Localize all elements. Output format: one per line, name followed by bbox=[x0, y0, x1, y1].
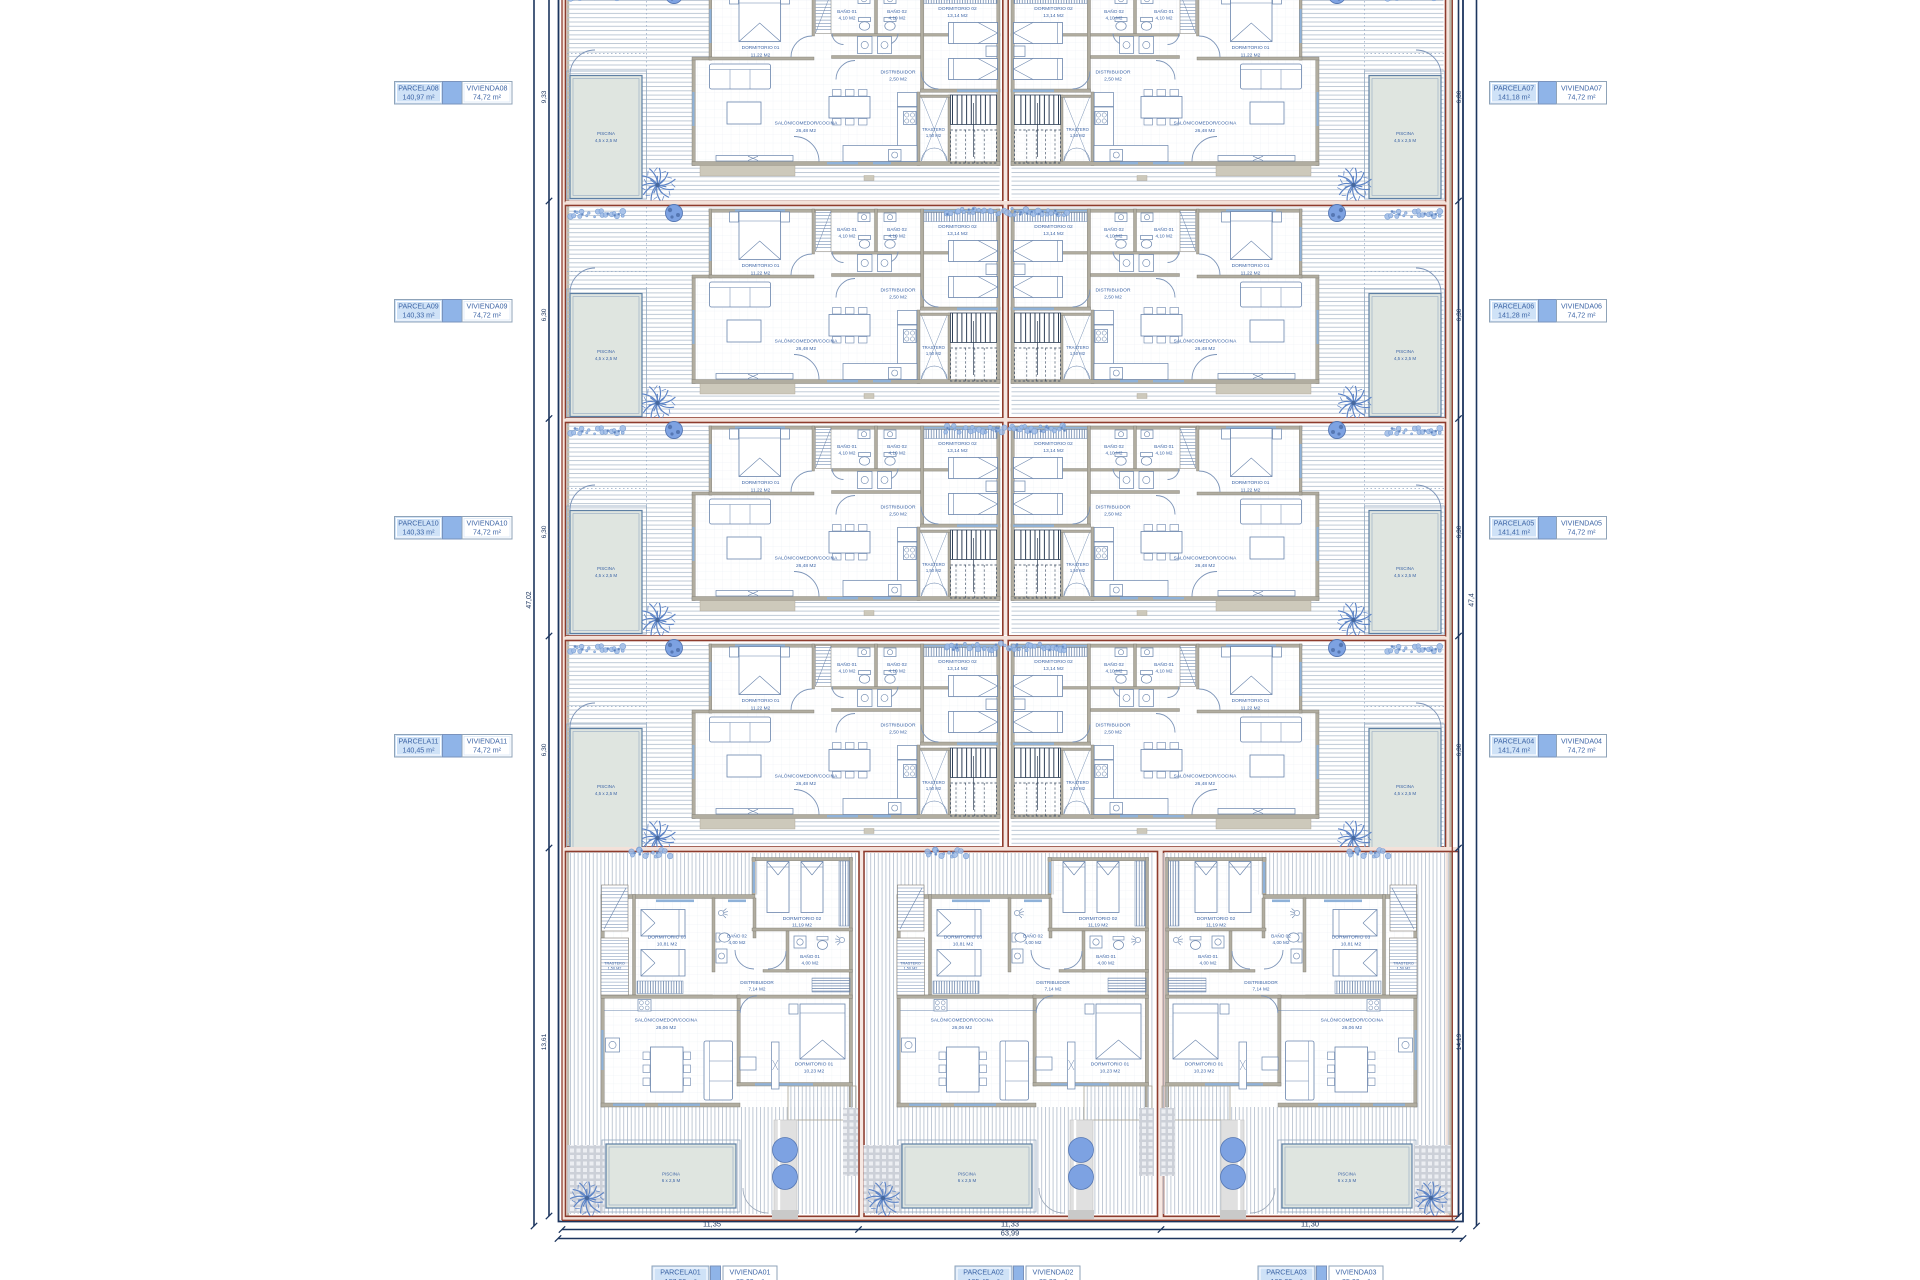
svg-text:4,00 M2: 4,00 M2 bbox=[729, 940, 746, 945]
svg-text:SALÓN/COMEDOR/COCINA: SALÓN/COMEDOR/COCINA bbox=[775, 555, 838, 562]
svg-text:140,33 m²: 140,33 m² bbox=[403, 312, 436, 320]
svg-text:26,48 M2: 26,48 M2 bbox=[796, 563, 816, 569]
svg-text:DORMITORIO 01: DORMITORIO 01 bbox=[1232, 698, 1270, 704]
svg-text:4,10 M2: 4,10 M2 bbox=[1156, 669, 1173, 674]
svg-text:140,97 m²: 140,97 m² bbox=[403, 94, 436, 102]
svg-text:74,72 m²: 74,72 m² bbox=[1568, 747, 1597, 755]
svg-text:74,72 m²: 74,72 m² bbox=[1568, 529, 1597, 537]
svg-text:26,48 M2: 26,48 M2 bbox=[1195, 128, 1215, 134]
svg-text:11,22 M2: 11,22 M2 bbox=[751, 53, 771, 59]
svg-text:BAÑO 02: BAÑO 02 bbox=[1104, 8, 1124, 14]
svg-text:BAÑO 01: BAÑO 01 bbox=[1154, 443, 1174, 449]
svg-text:BAÑO 01: BAÑO 01 bbox=[837, 443, 857, 449]
svg-text:DORMITORIO 01: DORMITORIO 01 bbox=[795, 1062, 834, 1068]
svg-text:PARCELA04: PARCELA04 bbox=[1494, 738, 1535, 746]
svg-text:11,22 M2: 11,22 M2 bbox=[1241, 53, 1261, 59]
svg-text:PARCELA06: PARCELA06 bbox=[1494, 303, 1535, 311]
svg-text:4,10 M2: 4,10 M2 bbox=[1106, 234, 1123, 239]
svg-text:1,50 M2: 1,50 M2 bbox=[904, 967, 918, 971]
svg-text:4,5 x 2,5 M: 4,5 x 2,5 M bbox=[1394, 138, 1417, 143]
svg-text:11,19 M2: 11,19 M2 bbox=[792, 923, 812, 929]
svg-text:10,23 M2: 10,23 M2 bbox=[1100, 1069, 1121, 1075]
svg-text:47,4: 47,4 bbox=[1469, 593, 1476, 607]
svg-text:PISCINA: PISCINA bbox=[958, 1172, 976, 1177]
svg-text:VIVIENDA11: VIVIENDA11 bbox=[467, 738, 508, 746]
svg-text:TRASTERO: TRASTERO bbox=[1393, 962, 1414, 966]
svg-text:PISCINA: PISCINA bbox=[597, 349, 615, 354]
svg-text:PARCELA08: PARCELA08 bbox=[398, 85, 439, 93]
svg-text:4,10 M2: 4,10 M2 bbox=[1106, 669, 1123, 674]
svg-text:26,06 M2: 26,06 M2 bbox=[952, 1025, 972, 1031]
svg-text:26,48 M2: 26,48 M2 bbox=[796, 346, 816, 352]
svg-text:BAÑO 02: BAÑO 02 bbox=[1023, 933, 1043, 939]
svg-text:BAÑO 02: BAÑO 02 bbox=[1271, 933, 1291, 939]
svg-text:1,50 M2: 1,50 M2 bbox=[1070, 133, 1086, 138]
svg-text:BAÑO 01: BAÑO 01 bbox=[837, 8, 857, 14]
svg-text:7,14 M2: 7,14 M2 bbox=[1253, 987, 1270, 992]
svg-text:1,50 M2: 1,50 M2 bbox=[1070, 568, 1086, 573]
svg-text:11,19 M2: 11,19 M2 bbox=[1088, 923, 1108, 929]
svg-text:DISTRIBUIDOR: DISTRIBUIDOR bbox=[1095, 70, 1131, 76]
svg-text:6,30: 6,30 bbox=[541, 308, 548, 321]
svg-text:BAÑO 01: BAÑO 01 bbox=[1154, 226, 1174, 232]
svg-text:13,14 M2: 13,14 M2 bbox=[947, 231, 968, 237]
svg-text:74,72 m²: 74,72 m² bbox=[473, 312, 502, 320]
svg-text:1,50 M2: 1,50 M2 bbox=[1070, 351, 1086, 356]
svg-text:DORMITORIO 02: DORMITORIO 02 bbox=[1034, 441, 1073, 447]
svg-text:4,5 x 2,5 M: 4,5 x 2,5 M bbox=[595, 573, 618, 578]
svg-text:DORMITORIO 02: DORMITORIO 02 bbox=[783, 916, 822, 922]
svg-text:PISCINA: PISCINA bbox=[597, 784, 615, 789]
svg-text:13,61: 13,61 bbox=[541, 1033, 548, 1050]
svg-text:2,50 M2: 2,50 M2 bbox=[1104, 730, 1122, 736]
svg-text:PARCELA05: PARCELA05 bbox=[1494, 520, 1535, 528]
svg-text:4,10 M2: 4,10 M2 bbox=[1156, 451, 1173, 456]
svg-text:VIVIENDA07: VIVIENDA07 bbox=[1561, 85, 1602, 93]
svg-text:VIVIENDA04: VIVIENDA04 bbox=[1561, 738, 1602, 746]
svg-text:141,41 m²: 141,41 m² bbox=[1498, 529, 1531, 537]
svg-text:BAÑO 01: BAÑO 01 bbox=[1154, 661, 1174, 667]
svg-text:4,10 M2: 4,10 M2 bbox=[839, 16, 856, 21]
svg-text:BAÑO 02: BAÑO 02 bbox=[727, 933, 747, 939]
svg-text:PISCINA: PISCINA bbox=[1396, 566, 1414, 571]
svg-text:6 x 2,5 M: 6 x 2,5 M bbox=[662, 1178, 681, 1183]
svg-text:VIVIENDA05: VIVIENDA05 bbox=[1561, 520, 1602, 528]
svg-text:4,00 M2: 4,00 M2 bbox=[1025, 940, 1042, 945]
svg-text:DORMITORIO 02: DORMITORIO 02 bbox=[938, 6, 977, 12]
svg-text:DORMITORIO 01: DORMITORIO 01 bbox=[1091, 1062, 1130, 1068]
svg-text:TRASTERO: TRASTERO bbox=[922, 562, 946, 567]
svg-text:PISCINA: PISCINA bbox=[1396, 784, 1414, 789]
svg-text:4,5 x 2,5 M: 4,5 x 2,5 M bbox=[595, 791, 618, 796]
svg-text:DORMITORIO 03: DORMITORIO 03 bbox=[944, 935, 983, 941]
svg-text:PISCINA: PISCINA bbox=[1396, 349, 1414, 354]
svg-text:DORMITORIO 02: DORMITORIO 02 bbox=[1034, 659, 1073, 665]
svg-text:PISCINA: PISCINA bbox=[597, 566, 615, 571]
svg-text:4,10 M2: 4,10 M2 bbox=[889, 234, 906, 239]
svg-text:141,18 m²: 141,18 m² bbox=[1498, 94, 1531, 102]
svg-text:26,48 M2: 26,48 M2 bbox=[1195, 781, 1215, 787]
svg-text:4,5 x 2,5 M: 4,5 x 2,5 M bbox=[595, 138, 618, 143]
svg-text:6,30: 6,30 bbox=[1456, 743, 1463, 756]
svg-text:47,02: 47,02 bbox=[526, 591, 533, 608]
svg-text:4,00 M2: 4,00 M2 bbox=[1273, 940, 1290, 945]
svg-text:2,50 M2: 2,50 M2 bbox=[889, 512, 907, 518]
svg-text:DISTRIBUIDOR: DISTRIBUIDOR bbox=[880, 505, 916, 511]
svg-text:2,50 M2: 2,50 M2 bbox=[889, 77, 907, 83]
svg-text:DISTRIBUIDOR: DISTRIBUIDOR bbox=[740, 980, 774, 985]
svg-text:6,30: 6,30 bbox=[541, 743, 548, 756]
svg-text:13,14 M2: 13,14 M2 bbox=[1043, 231, 1064, 237]
svg-text:11,22 M2: 11,22 M2 bbox=[1241, 706, 1261, 712]
svg-text:TRASTERO: TRASTERO bbox=[1066, 562, 1090, 567]
svg-text:PARCELA01: PARCELA01 bbox=[660, 1269, 701, 1277]
svg-text:1,50 M2: 1,50 M2 bbox=[926, 133, 942, 138]
svg-text:2,50 M2: 2,50 M2 bbox=[1104, 77, 1122, 83]
svg-text:4,00 M2: 4,00 M2 bbox=[1200, 961, 1217, 966]
svg-text:1,50 M2: 1,50 M2 bbox=[608, 967, 622, 971]
svg-text:PISCINA: PISCINA bbox=[1396, 131, 1414, 136]
svg-text:1,50 M2: 1,50 M2 bbox=[1070, 786, 1086, 791]
svg-text:SALÓN/COMEDOR/COCINA: SALÓN/COMEDOR/COCINA bbox=[1174, 120, 1237, 127]
svg-text:TRASTERO: TRASTERO bbox=[922, 127, 946, 132]
svg-text:VIVIENDA02: VIVIENDA02 bbox=[1032, 1269, 1073, 1277]
svg-text:BAÑO 02: BAÑO 02 bbox=[1104, 226, 1124, 232]
svg-text:2,50 M2: 2,50 M2 bbox=[1104, 295, 1122, 301]
svg-text:BAÑO 02: BAÑO 02 bbox=[887, 661, 907, 667]
svg-text:26,48 M2: 26,48 M2 bbox=[1195, 346, 1215, 352]
svg-text:9,33: 9,33 bbox=[541, 90, 548, 103]
svg-text:11,22 M2: 11,22 M2 bbox=[1241, 271, 1261, 277]
svg-text:11,35: 11,35 bbox=[703, 1220, 721, 1229]
svg-text:10,23 M2: 10,23 M2 bbox=[1194, 1069, 1215, 1075]
svg-text:PARCELA03: PARCELA03 bbox=[1266, 1269, 1307, 1277]
svg-text:BAÑO 02: BAÑO 02 bbox=[887, 443, 907, 449]
svg-text:DORMITORIO 01: DORMITORIO 01 bbox=[1232, 263, 1270, 269]
svg-text:74,72 m²: 74,72 m² bbox=[1568, 312, 1597, 320]
svg-text:BAÑO 01: BAÑO 01 bbox=[1096, 953, 1116, 959]
svg-text:VIVIENDA08: VIVIENDA08 bbox=[466, 85, 507, 93]
svg-text:DORMITORIO 02: DORMITORIO 02 bbox=[1034, 6, 1073, 12]
svg-text:4,5 x 2,5 M: 4,5 x 2,5 M bbox=[1394, 573, 1417, 578]
svg-text:74,72 m²: 74,72 m² bbox=[473, 94, 502, 102]
svg-text:DISTRIBUIDOR: DISTRIBUIDOR bbox=[1244, 980, 1278, 985]
svg-text:141,74 m²: 141,74 m² bbox=[1498, 747, 1531, 755]
svg-text:DORMITORIO 01: DORMITORIO 01 bbox=[742, 698, 780, 704]
svg-text:SALÓN/COMEDOR/COCINA: SALÓN/COMEDOR/COCINA bbox=[931, 1017, 994, 1024]
svg-text:14,19: 14,19 bbox=[1456, 1033, 1463, 1050]
svg-text:6 x 2,5 M: 6 x 2,5 M bbox=[958, 1178, 977, 1183]
svg-text:26,48 M2: 26,48 M2 bbox=[1195, 563, 1215, 569]
svg-text:VIVIENDA09: VIVIENDA09 bbox=[466, 303, 507, 311]
svg-text:13,14 M2: 13,14 M2 bbox=[1043, 666, 1064, 672]
svg-text:SALÓN/COMEDOR/COCINA: SALÓN/COMEDOR/COCINA bbox=[1321, 1017, 1384, 1024]
svg-text:4,10 M2: 4,10 M2 bbox=[839, 234, 856, 239]
svg-text:4,10 M2: 4,10 M2 bbox=[1106, 451, 1123, 456]
svg-text:4,00 M2: 4,00 M2 bbox=[1098, 961, 1115, 966]
svg-text:6,30: 6,30 bbox=[1456, 525, 1463, 538]
svg-text:DORMITORIO 01: DORMITORIO 01 bbox=[742, 45, 780, 51]
svg-text:TRASTERO: TRASTERO bbox=[1066, 345, 1090, 350]
svg-text:BAÑO 02: BAÑO 02 bbox=[1104, 661, 1124, 667]
svg-text:13,14 M2: 13,14 M2 bbox=[1043, 13, 1064, 19]
svg-text:DORMITORIO 03: DORMITORIO 03 bbox=[1332, 935, 1371, 941]
svg-text:DORMITORIO 02: DORMITORIO 02 bbox=[1079, 916, 1118, 922]
svg-text:4,5 x 2,5 M: 4,5 x 2,5 M bbox=[1394, 791, 1417, 796]
svg-text:DORMITORIO 01: DORMITORIO 01 bbox=[1232, 480, 1270, 486]
svg-text:2,50 M2: 2,50 M2 bbox=[1104, 512, 1122, 518]
svg-text:26,48 M2: 26,48 M2 bbox=[796, 128, 816, 134]
svg-text:SALÓN/COMEDOR/COCINA: SALÓN/COMEDOR/COCINA bbox=[1174, 555, 1237, 562]
svg-text:BAÑO 01: BAÑO 01 bbox=[1154, 8, 1174, 14]
svg-text:TRASTERO: TRASTERO bbox=[922, 780, 946, 785]
svg-text:BAÑO 01: BAÑO 01 bbox=[837, 661, 857, 667]
svg-text:PISCINA: PISCINA bbox=[1338, 1172, 1356, 1177]
svg-text:DISTRIBUIDOR: DISTRIBUIDOR bbox=[1036, 980, 1070, 985]
svg-text:11,22 M2: 11,22 M2 bbox=[751, 488, 771, 494]
svg-text:4,10 M2: 4,10 M2 bbox=[889, 451, 906, 456]
svg-text:VIVIENDA01: VIVIENDA01 bbox=[729, 1269, 770, 1277]
svg-text:DISTRIBUIDOR: DISTRIBUIDOR bbox=[1095, 723, 1131, 729]
svg-text:6 x 2,5 M: 6 x 2,5 M bbox=[1338, 1178, 1357, 1183]
svg-text:DISTRIBUIDOR: DISTRIBUIDOR bbox=[880, 288, 916, 294]
svg-text:4,10 M2: 4,10 M2 bbox=[1156, 234, 1173, 239]
svg-text:4,5 x 2,5 M: 4,5 x 2,5 M bbox=[1394, 356, 1417, 361]
svg-text:DORMITORIO 02: DORMITORIO 02 bbox=[938, 224, 977, 230]
svg-text:63,99: 63,99 bbox=[1001, 1229, 1020, 1238]
svg-text:6,30: 6,30 bbox=[1456, 308, 1463, 321]
svg-text:DORMITORIO 01: DORMITORIO 01 bbox=[1232, 45, 1270, 51]
svg-text:74,72 m²: 74,72 m² bbox=[473, 747, 502, 755]
svg-text:11,22 M2: 11,22 M2 bbox=[1241, 488, 1261, 494]
svg-text:DORMITORIO 02: DORMITORIO 02 bbox=[1197, 916, 1236, 922]
svg-text:10,81 M2: 10,81 M2 bbox=[953, 942, 974, 948]
svg-text:13,14 M2: 13,14 M2 bbox=[947, 13, 968, 19]
svg-text:SALÓN/COMEDOR/COCINA: SALÓN/COMEDOR/COCINA bbox=[775, 338, 838, 345]
svg-text:4,10 M2: 4,10 M2 bbox=[839, 451, 856, 456]
svg-text:4,10 M2: 4,10 M2 bbox=[1156, 16, 1173, 21]
svg-text:PARCELA10: PARCELA10 bbox=[398, 520, 439, 528]
svg-text:7,14 M2: 7,14 M2 bbox=[749, 987, 766, 992]
svg-text:BAÑO 01: BAÑO 01 bbox=[800, 953, 820, 959]
svg-text:TRASTERO: TRASTERO bbox=[1066, 780, 1090, 785]
svg-text:BAÑO 01: BAÑO 01 bbox=[1198, 953, 1218, 959]
svg-text:1,50 M2: 1,50 M2 bbox=[1397, 967, 1411, 971]
svg-text:SALÓN/COMEDOR/COCINA: SALÓN/COMEDOR/COCINA bbox=[775, 120, 838, 127]
svg-text:TRASTERO: TRASTERO bbox=[604, 962, 625, 966]
svg-text:DORMITORIO 03: DORMITORIO 03 bbox=[648, 935, 687, 941]
svg-text:SALÓN/COMEDOR/COCINA: SALÓN/COMEDOR/COCINA bbox=[775, 773, 838, 780]
svg-text:6,80: 6,80 bbox=[1456, 90, 1463, 103]
svg-text:11,33: 11,33 bbox=[1001, 1220, 1019, 1229]
svg-text:74,72 m²: 74,72 m² bbox=[1568, 94, 1597, 102]
svg-text:PARCELA11: PARCELA11 bbox=[399, 738, 439, 746]
svg-text:11,19 M2: 11,19 M2 bbox=[1206, 923, 1226, 929]
svg-text:BAÑO 02: BAÑO 02 bbox=[887, 226, 907, 232]
svg-text:11,30: 11,30 bbox=[1301, 1220, 1319, 1229]
svg-text:DISTRIBUIDOR: DISTRIBUIDOR bbox=[880, 70, 916, 76]
svg-text:DORMITORIO 01: DORMITORIO 01 bbox=[1185, 1062, 1224, 1068]
svg-text:2,50 M2: 2,50 M2 bbox=[889, 295, 907, 301]
svg-text:4,10 M2: 4,10 M2 bbox=[889, 16, 906, 21]
svg-text:DORMITORIO 02: DORMITORIO 02 bbox=[938, 659, 977, 665]
svg-text:13,14 M2: 13,14 M2 bbox=[947, 448, 968, 454]
svg-text:10,23 M2: 10,23 M2 bbox=[804, 1069, 825, 1075]
svg-text:1,50 M2: 1,50 M2 bbox=[926, 351, 942, 356]
svg-text:26,06 M2: 26,06 M2 bbox=[1342, 1025, 1362, 1031]
svg-text:PARCELA09: PARCELA09 bbox=[398, 303, 439, 311]
svg-text:2,50 M2: 2,50 M2 bbox=[889, 730, 907, 736]
svg-text:BAÑO 02: BAÑO 02 bbox=[1104, 443, 1124, 449]
svg-text:PARCELA02: PARCELA02 bbox=[963, 1269, 1004, 1277]
svg-text:DORMITORIO 02: DORMITORIO 02 bbox=[938, 441, 977, 447]
svg-text:141,28 m²: 141,28 m² bbox=[1498, 312, 1531, 320]
svg-text:7,14 M2: 7,14 M2 bbox=[1045, 987, 1062, 992]
svg-text:VIVIENDA06: VIVIENDA06 bbox=[1561, 303, 1602, 311]
svg-text:10,81 M2: 10,81 M2 bbox=[657, 942, 678, 948]
svg-text:SALÓN/COMEDOR/COCINA: SALÓN/COMEDOR/COCINA bbox=[1174, 773, 1237, 780]
svg-text:13,14 M2: 13,14 M2 bbox=[947, 666, 968, 672]
svg-text:DORMITORIO 02: DORMITORIO 02 bbox=[1034, 224, 1073, 230]
svg-text:TRASTERO: TRASTERO bbox=[922, 345, 946, 350]
svg-text:26,06 M2: 26,06 M2 bbox=[656, 1025, 676, 1031]
svg-text:10,81 M2: 10,81 M2 bbox=[1341, 942, 1362, 948]
svg-text:13,14 M2: 13,14 M2 bbox=[1043, 448, 1064, 454]
svg-text:SALÓN/COMEDOR/COCINA: SALÓN/COMEDOR/COCINA bbox=[1174, 338, 1237, 345]
svg-text:140,45 m²: 140,45 m² bbox=[403, 747, 436, 755]
svg-text:11,22 M2: 11,22 M2 bbox=[751, 271, 771, 277]
svg-text:VIVIENDA10: VIVIENDA10 bbox=[466, 520, 507, 528]
svg-text:140,33 m²: 140,33 m² bbox=[403, 529, 436, 537]
svg-text:6,30: 6,30 bbox=[541, 525, 548, 538]
svg-text:1,50 M2: 1,50 M2 bbox=[926, 568, 942, 573]
svg-text:26,48 M2: 26,48 M2 bbox=[796, 781, 816, 787]
svg-text:VIVIENDA03: VIVIENDA03 bbox=[1335, 1269, 1376, 1277]
svg-text:BAÑO 02: BAÑO 02 bbox=[887, 8, 907, 14]
svg-text:TRASTERO: TRASTERO bbox=[900, 962, 921, 966]
svg-text:4,10 M2: 4,10 M2 bbox=[889, 669, 906, 674]
svg-text:BAÑO 01: BAÑO 01 bbox=[837, 226, 857, 232]
svg-text:1,50 M2: 1,50 M2 bbox=[926, 786, 942, 791]
svg-text:DORMITORIO 01: DORMITORIO 01 bbox=[742, 263, 780, 269]
svg-text:DISTRIBUIDOR: DISTRIBUIDOR bbox=[880, 723, 916, 729]
svg-text:4,00 M2: 4,00 M2 bbox=[802, 961, 819, 966]
svg-text:DISTRIBUIDOR: DISTRIBUIDOR bbox=[1095, 288, 1131, 294]
svg-text:SALÓN/COMEDOR/COCINA: SALÓN/COMEDOR/COCINA bbox=[635, 1017, 698, 1024]
svg-text:DISTRIBUIDOR: DISTRIBUIDOR bbox=[1095, 505, 1131, 511]
svg-text:TRASTERO: TRASTERO bbox=[1066, 127, 1090, 132]
svg-text:74,72 m²: 74,72 m² bbox=[473, 529, 502, 537]
svg-text:4,5 x 2,5 M: 4,5 x 2,5 M bbox=[595, 356, 618, 361]
svg-text:PISCINA: PISCINA bbox=[597, 131, 615, 136]
svg-text:11,22 M2: 11,22 M2 bbox=[751, 706, 771, 712]
svg-text:PARCELA07: PARCELA07 bbox=[1494, 85, 1535, 93]
svg-text:DORMITORIO 01: DORMITORIO 01 bbox=[742, 480, 780, 486]
svg-text:4,10 M2: 4,10 M2 bbox=[1106, 16, 1123, 21]
svg-text:4,10 M2: 4,10 M2 bbox=[839, 669, 856, 674]
svg-text:PISCINA: PISCINA bbox=[662, 1172, 680, 1177]
